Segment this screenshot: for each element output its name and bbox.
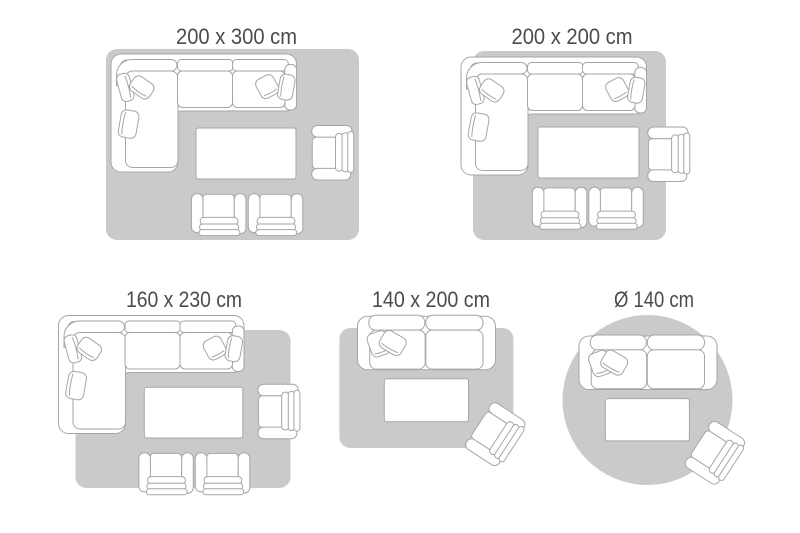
svg-text:200 x 200 cm: 200 x 200 cm <box>512 24 633 49</box>
svg-text:200 x 300 cm: 200 x 300 cm <box>176 24 297 49</box>
svg-text:140 x 200 cm: 140 x 200 cm <box>372 287 490 312</box>
svg-text:Ø 140 cm: Ø 140 cm <box>614 287 694 312</box>
svg-text:160 x 230 cm: 160 x 230 cm <box>126 287 242 312</box>
